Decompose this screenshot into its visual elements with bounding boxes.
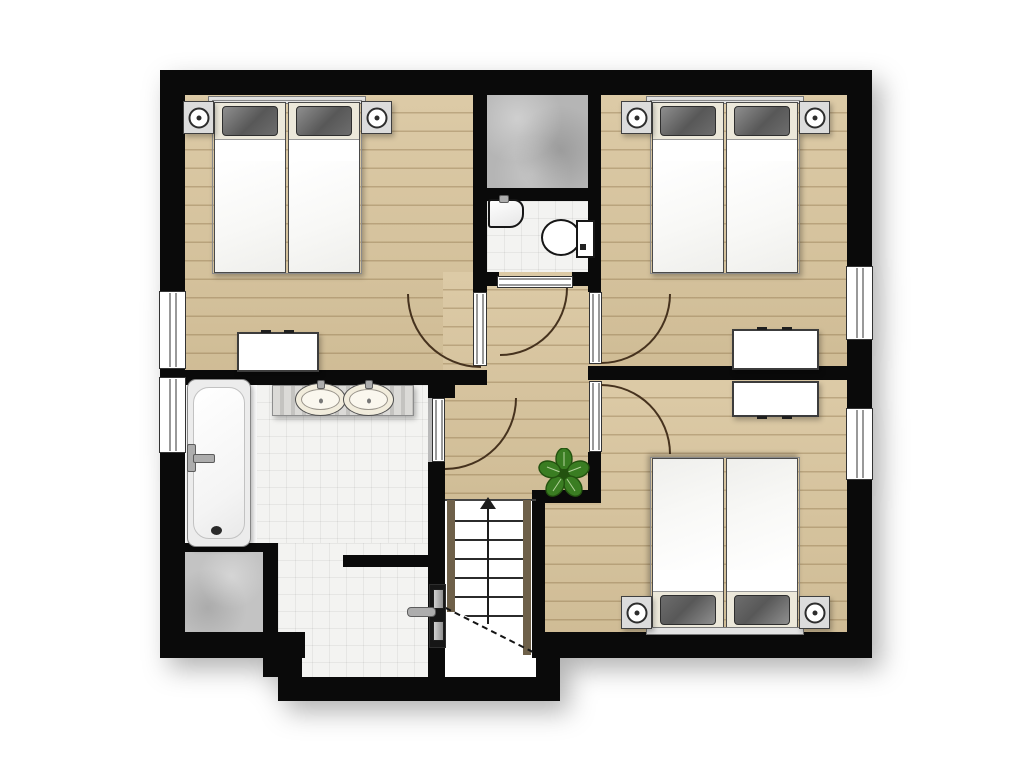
bed1-sheet-left bbox=[215, 139, 285, 163]
bed2-duvet-right bbox=[727, 161, 797, 272]
stair-tread bbox=[455, 577, 523, 579]
storage-closet-floor bbox=[487, 95, 588, 188]
stair-direction-arrowhead bbox=[480, 497, 496, 509]
bed3-sheet-right bbox=[653, 568, 723, 592]
bed1-pillow-right bbox=[296, 106, 352, 136]
bed3-duvet-right bbox=[653, 459, 723, 570]
bed2-nightstand-left bbox=[621, 101, 652, 134]
window-bedroom1-left bbox=[159, 291, 186, 369]
bed3-half-left bbox=[726, 458, 798, 629]
door-threshold-wc bbox=[497, 276, 573, 288]
wall-hall-jog-vertical bbox=[532, 503, 545, 658]
bed1-nightstand-left bbox=[183, 101, 214, 134]
window-bedroom3-right bbox=[846, 408, 873, 480]
bedroom3-dresser bbox=[732, 381, 819, 417]
bed2-sheet-left bbox=[653, 139, 723, 163]
bed2-half-left bbox=[652, 102, 724, 273]
bed3-sheet-left bbox=[727, 568, 797, 592]
door-lever-handle bbox=[407, 607, 436, 617]
window-bedroom2-right bbox=[846, 266, 873, 340]
bed2-duvet-left bbox=[653, 161, 723, 272]
toilet-flush-button bbox=[580, 244, 586, 250]
washbasin-tap-right bbox=[365, 380, 373, 389]
bed2-pillow-right bbox=[734, 106, 790, 136]
bed2-nightstand-right bbox=[799, 101, 830, 134]
shaft-square-floor bbox=[184, 552, 263, 632]
bedroom2-dresser bbox=[732, 329, 819, 370]
wc-basin-tap bbox=[499, 195, 509, 203]
bed1-nightstand-right bbox=[361, 101, 392, 134]
outer-wall-top bbox=[160, 70, 872, 95]
bed2 bbox=[650, 100, 800, 274]
bed3-headboard bbox=[646, 627, 804, 635]
stair-tread bbox=[455, 520, 523, 522]
bed1-pillow-left bbox=[222, 106, 278, 136]
window-bathroom-left bbox=[159, 377, 186, 453]
wall-wc-bottom-left bbox=[473, 272, 499, 286]
stair-stringer-right bbox=[523, 500, 531, 655]
outer-wall-protrusion-bottom bbox=[278, 677, 560, 701]
floor-plan bbox=[0, 0, 1024, 768]
bedroom1-dresser bbox=[237, 332, 319, 372]
stair-tread bbox=[455, 558, 523, 560]
bed3 bbox=[650, 457, 800, 631]
bed3-nightstand-left bbox=[621, 596, 652, 629]
stair-stringer-left bbox=[447, 500, 455, 612]
potted-plant bbox=[538, 448, 590, 500]
bed3-pillow-right bbox=[660, 595, 716, 625]
plant-icon bbox=[538, 448, 590, 500]
bed1-duvet-right bbox=[289, 161, 359, 272]
bed1-half-right bbox=[288, 102, 360, 273]
bed1-half-left bbox=[214, 102, 286, 273]
bed2-sheet-right bbox=[727, 139, 797, 163]
stair-tread bbox=[455, 539, 523, 541]
outer-wall-bottom-right bbox=[536, 632, 872, 658]
bathtub-inner bbox=[193, 387, 245, 539]
door-threshold-bathroom bbox=[432, 398, 445, 462]
bed1 bbox=[212, 100, 362, 274]
door-lock-plate-lower bbox=[433, 621, 444, 641]
bathtub-faucet-spout bbox=[193, 454, 215, 463]
bed3-duvet-left bbox=[727, 459, 797, 570]
wall-shaft-right bbox=[263, 543, 278, 677]
door-lock-plate-upper bbox=[433, 589, 444, 609]
bed1-sheet-right bbox=[289, 139, 359, 163]
wc-hand-basin bbox=[488, 199, 524, 228]
wall-bathroom-ne-corner bbox=[428, 370, 455, 398]
washbasin-tap-left bbox=[317, 380, 325, 389]
wall-wc-bottom-right bbox=[572, 272, 601, 286]
stair-tread bbox=[455, 596, 523, 598]
outer-wall-right bbox=[847, 70, 872, 658]
bed3-nightstand-right bbox=[799, 596, 830, 629]
wall-bathroom-stub bbox=[343, 555, 443, 567]
bed3-pillow-left bbox=[734, 595, 790, 625]
toilet-bowl bbox=[541, 219, 581, 256]
bed2-pillow-left bbox=[660, 106, 716, 136]
bathtub-drain bbox=[211, 526, 222, 535]
wall-wc-bedroom2 bbox=[588, 94, 601, 292]
stair-direction-line bbox=[487, 506, 489, 624]
bed2-half-right bbox=[726, 102, 798, 273]
bed1-duvet-left bbox=[215, 161, 285, 272]
bed3-half-right bbox=[652, 458, 724, 629]
toilet-cistern bbox=[576, 220, 595, 258]
